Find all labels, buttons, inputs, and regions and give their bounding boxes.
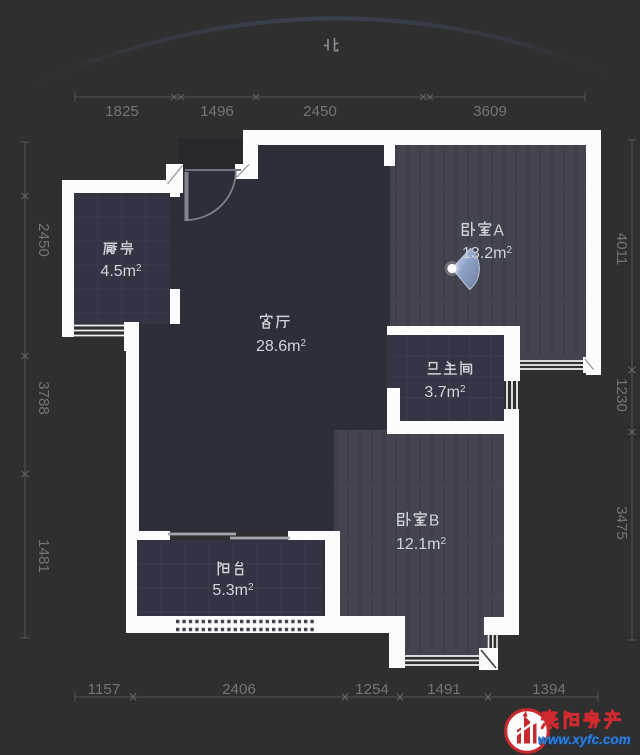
svg-text:3788: 3788 <box>35 381 52 415</box>
svg-text:1481: 1481 <box>35 539 52 573</box>
svg-text:1230: 1230 <box>613 378 630 412</box>
svg-text:13.2m2: 13.2m2 <box>462 245 512 262</box>
svg-text:B: B <box>429 513 439 530</box>
svg-text:2450: 2450 <box>303 103 337 120</box>
svg-text:3.7m2: 3.7m2 <box>424 384 466 401</box>
svg-text:4.5m2: 4.5m2 <box>100 263 142 280</box>
svg-text:4011: 4011 <box>613 233 630 266</box>
svg-text:2450: 2450 <box>35 223 52 257</box>
svg-text:1254: 1254 <box>355 681 389 698</box>
svg-text:1825: 1825 <box>105 103 139 120</box>
svg-text:3475: 3475 <box>613 506 630 540</box>
svg-text:1157: 1157 <box>88 681 121 698</box>
svg-text:2406: 2406 <box>222 681 256 698</box>
svg-text:12.1m2: 12.1m2 <box>396 536 446 553</box>
svg-text:1496: 1496 <box>200 103 234 120</box>
svg-text:5.3m2: 5.3m2 <box>212 582 254 599</box>
svg-text:A: A <box>494 223 505 240</box>
svg-text:1394: 1394 <box>532 681 566 698</box>
svg-text:28.6m2: 28.6m2 <box>256 338 306 355</box>
svg-text:www.xyfc.com: www.xyfc.com <box>537 732 630 747</box>
svg-text:1491: 1491 <box>427 681 461 698</box>
svg-text:3609: 3609 <box>473 103 507 120</box>
